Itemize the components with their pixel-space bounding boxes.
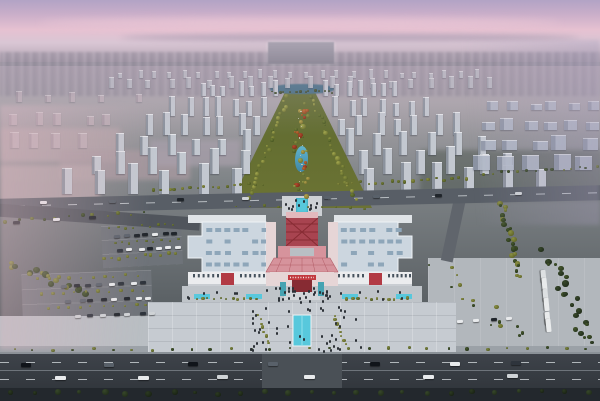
apron-pool [246,294,262,299]
skylight [378,263,384,267]
skylight [368,251,374,255]
right-wing-portal [369,273,382,285]
aerial-city-rendering [0,0,600,401]
facade-window [343,274,345,277]
apron-pool [396,294,412,299]
facade-window [203,274,205,277]
skylight [224,228,230,232]
courtyard-floor [290,248,314,256]
teal-column-right [318,282,324,296]
facade-window [254,274,256,277]
skylight [396,240,402,244]
skylight [368,263,374,267]
facade-window [348,274,350,277]
central-tower-cap [286,212,318,218]
skylight [224,263,230,267]
skylight [243,263,249,267]
facade-window [212,274,214,277]
skylight [386,228,392,232]
apron-pool [194,294,210,299]
skylight [215,228,221,232]
facade-window [405,274,407,277]
skylight [387,240,393,244]
facade-window [357,274,359,277]
skylight [252,240,258,244]
facade-window [338,274,340,277]
skylight [350,240,356,244]
facade-window [362,274,364,277]
skylight [242,228,248,232]
entrance-doors [292,280,312,292]
skylight [341,228,347,232]
skylight [206,263,212,267]
skylight [341,263,347,267]
skylight [225,251,231,255]
skylight [234,228,240,232]
skylight [396,228,402,232]
skylight [215,251,221,255]
skylight [369,228,375,232]
skylight [215,263,221,267]
skylight [253,251,259,255]
facade-window [245,274,247,277]
skylight [350,228,356,232]
facade-window [217,274,219,277]
facade-window [352,274,354,277]
skylight [261,251,267,255]
facade-window [258,274,260,277]
facade-window [396,274,398,277]
skylight [387,251,393,255]
skylight [206,228,212,232]
facade-window [263,274,265,277]
skylight [351,251,357,255]
skylight [225,240,231,244]
skylight [378,240,384,244]
facade-window [198,274,200,277]
facade-window [207,274,209,277]
complex-group [188,212,412,346]
skylight [242,251,248,255]
left-wing-portal [221,273,234,285]
skylight [397,251,403,255]
skylight [233,263,239,267]
facade-window [193,274,195,277]
skylight [369,240,375,244]
facade-window [240,274,242,277]
entrance-steps [284,292,320,300]
facade-window [388,274,390,277]
teal-column-left [280,282,286,296]
apron-pool [342,294,358,299]
exhibition-complex [0,0,600,401]
facade-window [401,274,403,277]
facade-window [409,274,411,277]
skylight [359,240,365,244]
skylight [206,251,212,255]
skylight [360,228,366,232]
skylight [341,240,347,244]
skylight [206,240,212,244]
facade-window [249,274,251,277]
facade-window [392,274,394,277]
